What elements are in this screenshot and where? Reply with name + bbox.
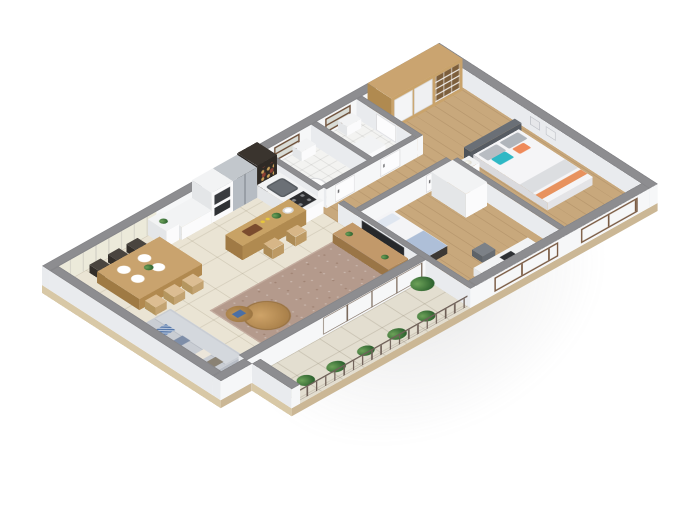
- blue-book: [232, 309, 246, 318]
- bowl: [280, 206, 296, 215]
- lemons: [258, 216, 273, 225]
- console-plant: [379, 254, 390, 261]
- scene: Isometric 3D cutaway rendering of a two-…: [0, 0, 680, 508]
- wall-art-frame: [546, 126, 556, 141]
- fridge-handle: [244, 174, 245, 205]
- wall-face: [417, 135, 423, 157]
- console-plant: [344, 231, 355, 238]
- sideboard-plant: [157, 217, 169, 224]
- wall-art-frame: [530, 116, 540, 131]
- wall-face: [470, 286, 476, 308]
